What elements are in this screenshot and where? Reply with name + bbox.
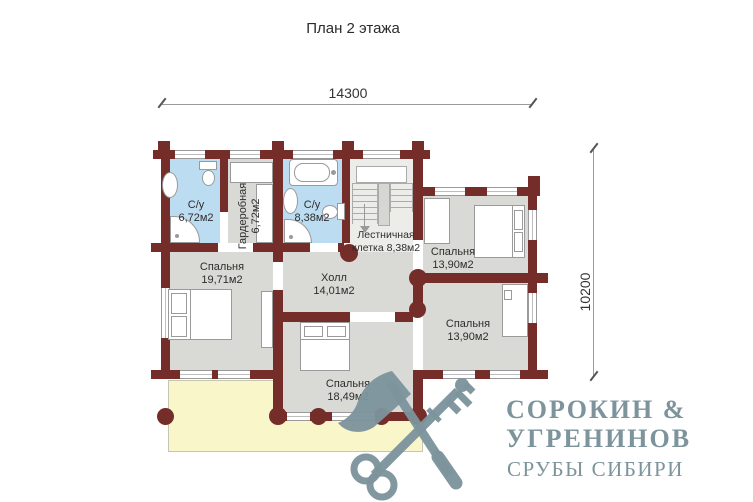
bed-headboard-line bbox=[190, 289, 191, 340]
room-label-bedroom-top-right: Спальня 13,90м2 bbox=[422, 246, 484, 272]
window bbox=[175, 150, 205, 159]
room-label-hall: Холл 14,01м2 bbox=[303, 272, 365, 298]
room-area: 13,90м2 bbox=[437, 331, 499, 344]
room-label-bathroom-1: С/у 6,72м2 bbox=[166, 199, 226, 225]
room-name: Спальня bbox=[422, 246, 484, 259]
room-label-bedroom-left: Спальня 19,71м2 bbox=[191, 261, 253, 287]
room-area: 14,01м2 bbox=[303, 285, 365, 298]
log-stub bbox=[342, 141, 354, 150]
dimension-width-value: 14300 bbox=[303, 85, 393, 101]
bathtub-inner bbox=[294, 163, 330, 182]
log-stub bbox=[412, 141, 424, 150]
room-area: 8,38м2 bbox=[282, 212, 342, 225]
room-label-stairwell: Лестничная клетка 8,38м2 bbox=[348, 229, 424, 255]
bed-headboard-line bbox=[300, 339, 350, 340]
wall-interior bbox=[161, 243, 218, 252]
logo-line-1: СОРОКИН & bbox=[506, 395, 686, 425]
window bbox=[528, 210, 537, 240]
window bbox=[293, 150, 333, 159]
window bbox=[435, 187, 465, 196]
room-area: 6,72м2 bbox=[250, 176, 263, 256]
wall-interior bbox=[413, 273, 537, 283]
logo-line-2: УГРЕНИНОВ bbox=[506, 424, 691, 454]
shower-drain bbox=[175, 234, 179, 238]
bed-headboard-line bbox=[512, 205, 513, 258]
pillow bbox=[514, 232, 523, 252]
sink bbox=[162, 172, 178, 198]
room-name: Гардеробная bbox=[237, 176, 250, 256]
pillow bbox=[171, 293, 187, 314]
stair-landing bbox=[356, 166, 407, 183]
wall-spine bbox=[413, 150, 423, 240]
room-label-bathroom-2: С/у 8,38м2 bbox=[282, 199, 342, 225]
stair-direction-arrow bbox=[364, 204, 365, 226]
window bbox=[230, 150, 260, 159]
window bbox=[287, 412, 310, 421]
window bbox=[363, 150, 400, 159]
pillow bbox=[514, 210, 523, 230]
dimension-tick bbox=[158, 98, 167, 109]
window bbox=[487, 187, 517, 196]
floor-plan-page: План 2 этажа 14300 10200 bbox=[0, 0, 753, 502]
dimension-height-value: 10200 bbox=[577, 262, 593, 322]
dimension-line-vertical bbox=[593, 150, 594, 378]
logo-line-3: СРУБЫ СИБИРИ bbox=[507, 457, 684, 482]
closet bbox=[261, 291, 273, 348]
wall-interior bbox=[273, 290, 283, 371]
log-stub bbox=[158, 141, 170, 150]
window bbox=[180, 370, 212, 379]
room-name: С/у bbox=[282, 199, 342, 212]
dimension-tick bbox=[590, 143, 599, 154]
closet-detail bbox=[504, 290, 512, 300]
shower-drain bbox=[289, 235, 293, 239]
closet bbox=[424, 198, 450, 244]
window bbox=[218, 370, 250, 379]
stair-flight bbox=[352, 183, 378, 224]
axe-and-key-logo-icon bbox=[332, 363, 507, 502]
bathtub-faucet bbox=[331, 170, 336, 175]
stair-divider bbox=[378, 183, 390, 226]
toilet-bowl bbox=[202, 170, 215, 186]
room-area: клетка 8,38м2 bbox=[348, 242, 424, 255]
pillow bbox=[327, 326, 346, 337]
dimension-line-horizontal bbox=[162, 104, 533, 105]
room-label-wardrobe: Гардеробная 6,72м2 bbox=[237, 176, 263, 256]
wall-interior bbox=[273, 252, 283, 262]
stair-flight bbox=[390, 183, 413, 212]
log-end bbox=[269, 407, 287, 425]
window bbox=[528, 293, 537, 323]
room-name: Холл bbox=[303, 272, 365, 285]
log-end bbox=[409, 301, 426, 318]
wall-interior bbox=[283, 312, 350, 322]
pillow bbox=[171, 316, 187, 337]
room-name: С/у bbox=[166, 199, 226, 212]
dimension-tick bbox=[529, 98, 538, 109]
room-label-bedroom-bottom-right: Спальня 13,90м2 bbox=[437, 318, 499, 344]
log-end bbox=[310, 408, 327, 425]
log-stub bbox=[151, 243, 161, 252]
room-area: 6,72м2 bbox=[166, 212, 226, 225]
page-title: План 2 этажа bbox=[280, 20, 426, 37]
log-stub bbox=[272, 141, 284, 150]
dimension-tick bbox=[590, 371, 599, 382]
log-end bbox=[157, 408, 174, 425]
pillow bbox=[304, 326, 323, 337]
room-area: 19,71м2 bbox=[191, 274, 253, 287]
room-name: Спальня bbox=[437, 318, 499, 331]
room-area: 13,90м2 bbox=[422, 259, 484, 272]
wall-interior bbox=[273, 150, 283, 243]
toilet-tank bbox=[199, 161, 217, 170]
room-name: Спальня bbox=[191, 261, 253, 274]
log-stub bbox=[528, 176, 540, 187]
log-stub bbox=[537, 273, 548, 283]
room-name: Лестничная bbox=[348, 229, 424, 242]
